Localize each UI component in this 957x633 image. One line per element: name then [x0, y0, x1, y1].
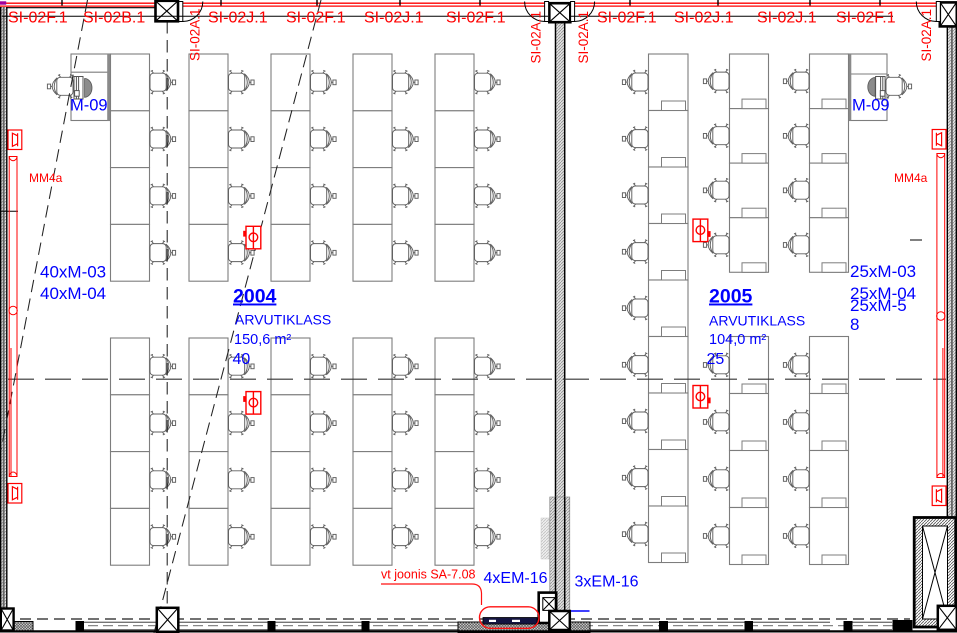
- svg-text:40xM-03: 40xM-03: [40, 263, 106, 282]
- svg-text:ARVUTIKLASS: ARVUTIKLASS: [235, 312, 331, 328]
- svg-text:25xM-5: 25xM-5: [850, 296, 907, 315]
- svg-text:40: 40: [233, 351, 251, 368]
- svg-text:SI-02J.1: SI-02J.1: [674, 9, 734, 26]
- svg-text:8: 8: [850, 315, 859, 334]
- svg-text:SI-02F.1: SI-02F.1: [286, 9, 346, 26]
- svg-text:vt joonis SA-7.08: vt joonis SA-7.08: [381, 568, 476, 582]
- svg-text:104,0 m²: 104,0 m²: [709, 332, 766, 348]
- svg-text:SI-02F.1: SI-02F.1: [8, 9, 68, 26]
- svg-text:150,6 m²: 150,6 m²: [234, 332, 291, 348]
- svg-text:SI-02A.1: SI-02A.1: [576, 11, 591, 64]
- svg-text:25: 25: [707, 351, 725, 368]
- svg-text:3xEM-16: 3xEM-16: [575, 574, 639, 591]
- svg-text:SI-02A.1: SI-02A.1: [919, 9, 934, 62]
- svg-text:2005: 2005: [709, 286, 753, 308]
- svg-text:SI-02A.1: SI-02A.1: [529, 11, 544, 64]
- svg-text:SI-02J.1: SI-02J.1: [364, 9, 424, 26]
- svg-text:4xEM-16: 4xEM-16: [484, 570, 548, 587]
- svg-text:MM4a: MM4a: [894, 171, 928, 185]
- svg-text:SI-02B.1: SI-02B.1: [83, 9, 145, 26]
- svg-text:25xM-03: 25xM-03: [850, 262, 916, 281]
- svg-text:SI-02A.1: SI-02A.1: [188, 8, 203, 61]
- svg-text:SI-02J.1: SI-02J.1: [208, 9, 268, 26]
- svg-text:M-09: M-09: [852, 97, 890, 115]
- svg-text:40xM-04: 40xM-04: [40, 284, 106, 303]
- svg-text:2004: 2004: [233, 286, 277, 308]
- svg-text:MM4a: MM4a: [29, 171, 63, 185]
- svg-text:ARVUTIKLASS: ARVUTIKLASS: [709, 313, 805, 329]
- svg-text:SI-02F.1: SI-02F.1: [446, 9, 506, 26]
- svg-text:SI-02F.1: SI-02F.1: [836, 9, 896, 26]
- svg-text:SI-02F.1: SI-02F.1: [597, 9, 657, 26]
- svg-text:M-09: M-09: [70, 97, 108, 115]
- svg-text:SI-02J.1: SI-02J.1: [757, 9, 817, 26]
